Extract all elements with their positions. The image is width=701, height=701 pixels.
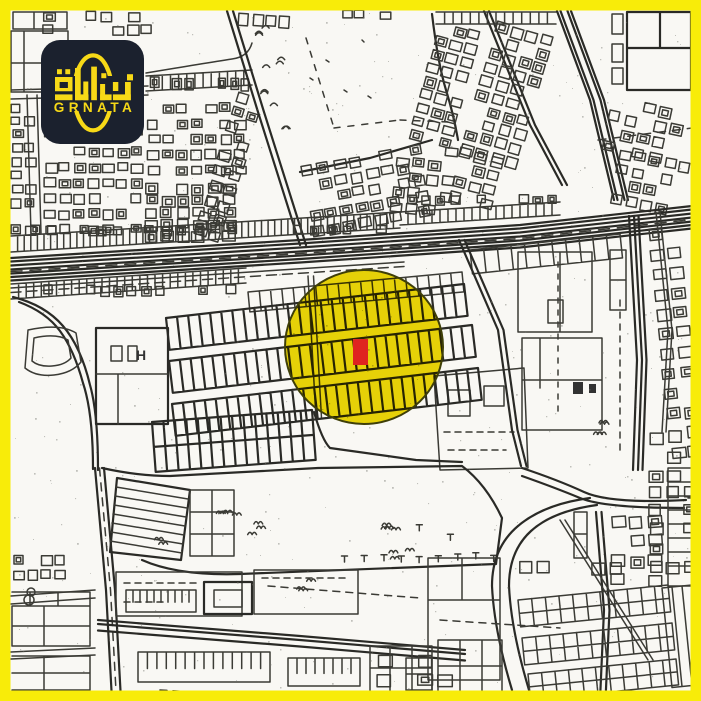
svg-text:H: H: [136, 347, 146, 363]
svg-text:GRNATA: GRNATA: [54, 100, 137, 115]
